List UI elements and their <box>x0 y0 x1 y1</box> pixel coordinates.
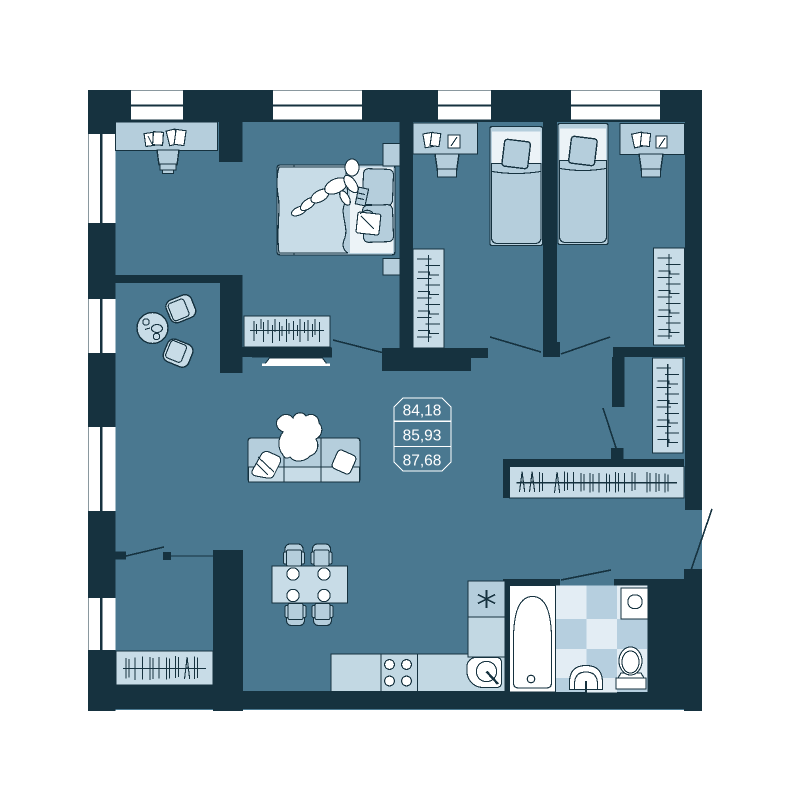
svg-text:84,18: 84,18 <box>403 403 442 420</box>
svg-text:87,68: 87,68 <box>403 453 442 470</box>
svg-text:85,93: 85,93 <box>403 428 442 445</box>
